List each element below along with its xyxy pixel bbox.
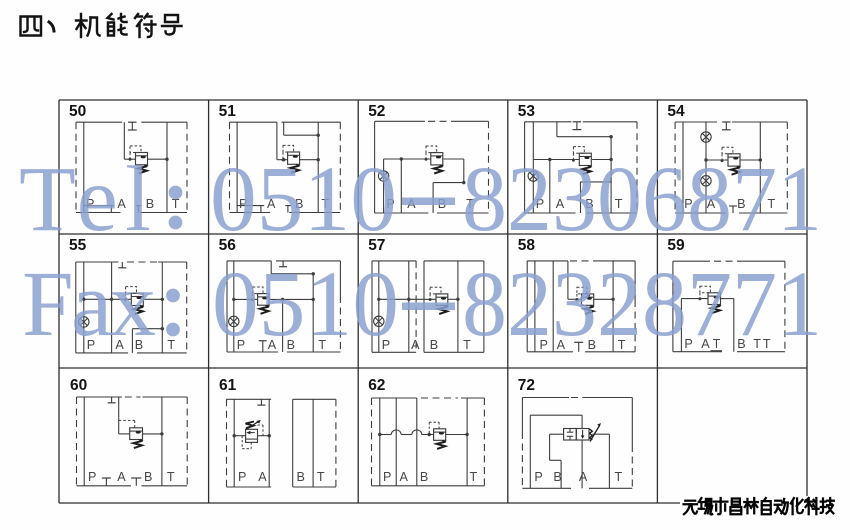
svg-text:B: B [430, 338, 438, 352]
svg-text:0510: 0510 [212, 253, 399, 356]
svg-text:B: B [420, 470, 428, 484]
svg-text:60: 60 [70, 377, 87, 394]
svg-text:52: 52 [368, 103, 385, 120]
svg-text:B: B [553, 470, 561, 484]
svg-text:0510: 0510 [210, 148, 397, 251]
svg-text:50: 50 [69, 103, 86, 120]
svg-text:A: A [400, 470, 409, 484]
svg-text:Fax: Fax [22, 253, 156, 356]
svg-text:P: P [383, 470, 391, 484]
svg-text:62: 62 [368, 377, 385, 394]
svg-text:72: 72 [518, 377, 535, 394]
svg-text:P: P [238, 470, 246, 484]
svg-text:A: A [411, 338, 420, 352]
svg-text:B: B [144, 470, 152, 484]
svg-text:51: 51 [219, 103, 237, 120]
svg-text:P: P [534, 470, 542, 484]
svg-text:A: A [258, 470, 267, 484]
svg-text:Tel: Tel [19, 148, 151, 251]
svg-text:61: 61 [219, 377, 237, 394]
svg-text:82306871: 82306871 [462, 148, 822, 251]
svg-text:T: T [615, 470, 623, 484]
svg-text:T: T [167, 470, 175, 484]
svg-text:53: 53 [518, 103, 536, 120]
svg-text:54: 54 [667, 103, 685, 120]
svg-text:A: A [579, 470, 588, 484]
svg-text:T: T [470, 470, 478, 484]
svg-text:T: T [167, 338, 175, 352]
svg-text:P: P [88, 470, 96, 484]
svg-text:B: B [297, 470, 305, 484]
svg-text:82328771: 82328771 [462, 253, 822, 356]
svg-text:A: A [117, 470, 126, 484]
svg-text:T: T [317, 470, 325, 484]
